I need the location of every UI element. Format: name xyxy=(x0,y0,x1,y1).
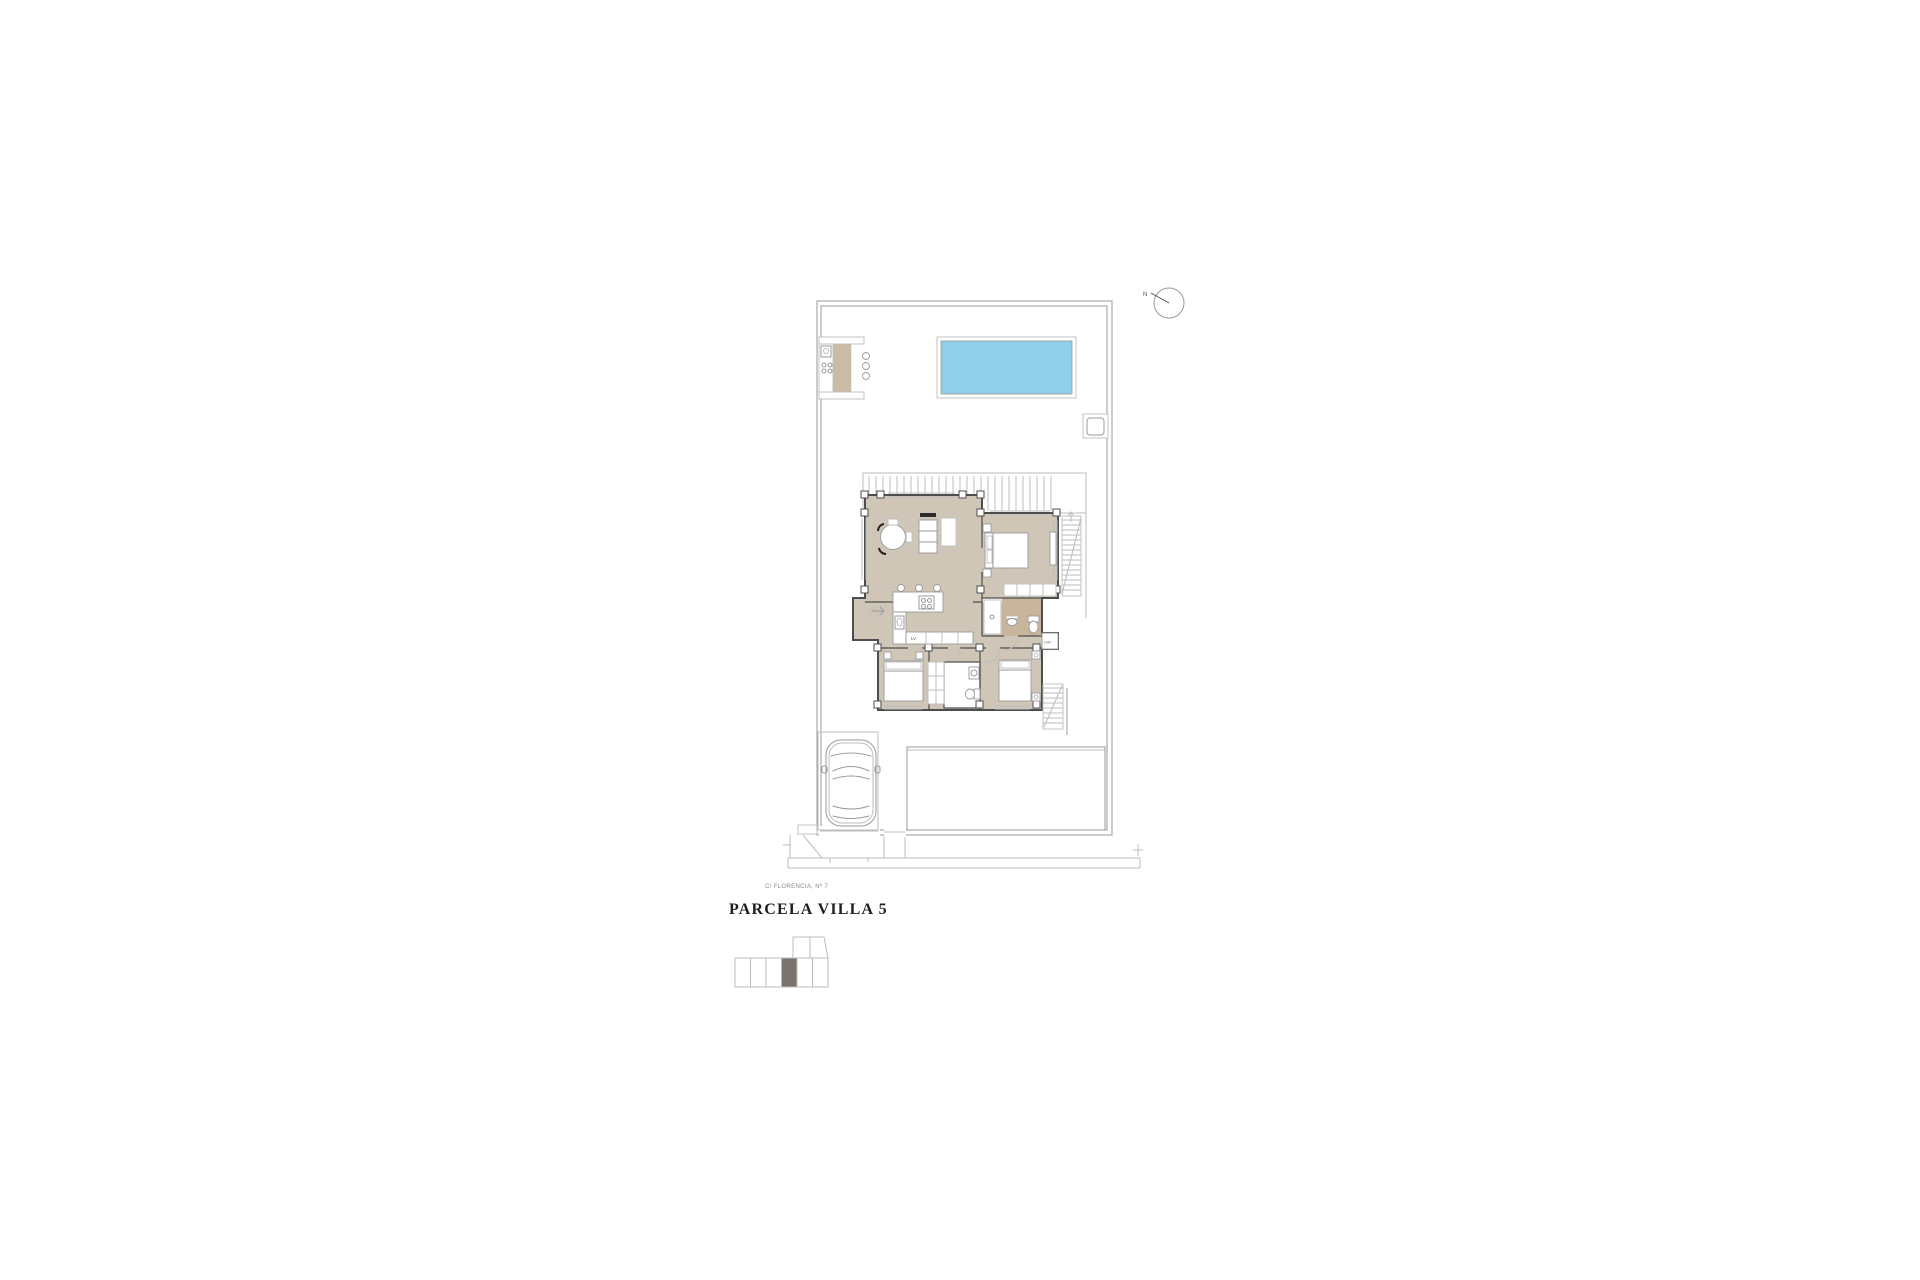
entry-porch-floor xyxy=(853,598,881,640)
house-floor-plan: LV xyxy=(853,491,1081,735)
outdoor-kitchen xyxy=(819,337,870,399)
key-plan-unit xyxy=(797,958,813,987)
bar-stools xyxy=(863,353,870,380)
outdoor-kitchen-wood-bar xyxy=(833,340,851,398)
sidewalk-lines xyxy=(788,858,1140,868)
pillar xyxy=(977,491,984,498)
key-plan-bottom-row xyxy=(735,958,828,987)
dining-table xyxy=(881,525,906,550)
tv-sideboard xyxy=(920,513,936,517)
pillow xyxy=(987,536,992,549)
drawing-sheet: LV xyxy=(0,0,1920,1280)
outdoor-kitchen-bottom-wall xyxy=(819,392,864,399)
exterior-stairs-upper xyxy=(1062,512,1081,596)
pillow xyxy=(987,550,992,563)
car-windows xyxy=(831,753,871,819)
pillar xyxy=(977,509,984,516)
key-plan-unit xyxy=(766,958,782,987)
dresser xyxy=(1050,532,1056,565)
nightstand xyxy=(884,652,891,659)
pool-water xyxy=(941,341,1072,394)
pillar xyxy=(874,701,881,708)
sofa xyxy=(919,520,937,553)
corner-gate-post xyxy=(798,825,817,834)
sidewalk-ticks xyxy=(783,844,1143,863)
nightstand xyxy=(1032,651,1040,659)
nightstand xyxy=(983,569,991,577)
terrace-outline xyxy=(907,747,1105,830)
toilet-1 xyxy=(1029,621,1038,633)
pillar xyxy=(976,701,983,708)
terrace xyxy=(907,747,1105,830)
dishwasher-label: LV xyxy=(911,636,916,641)
toilet-2 xyxy=(966,689,975,699)
nightstand xyxy=(983,524,991,532)
pillar xyxy=(959,491,966,498)
key-plan-unit-highlighted xyxy=(782,958,798,987)
pillar xyxy=(861,491,868,498)
key-plan-unit xyxy=(751,958,767,987)
key-plan-unit xyxy=(735,958,751,987)
entrance-path-lines xyxy=(884,835,905,858)
page-title: PARCELA VILLA 5 xyxy=(729,901,888,919)
site-plan-drawing: LV xyxy=(0,0,1920,1280)
driveway-ramp xyxy=(790,835,822,858)
pillar xyxy=(976,644,983,651)
nightstand xyxy=(1032,693,1040,701)
bed-3-pillows xyxy=(886,662,921,669)
parking-space xyxy=(818,732,880,830)
coffee-table xyxy=(941,518,956,546)
key-plan xyxy=(735,937,828,987)
street-address: C/ FLORENCIA, Nº 7 xyxy=(765,884,828,890)
north-arrow: N xyxy=(1143,288,1184,318)
pillar xyxy=(977,586,984,593)
pillar xyxy=(925,644,932,651)
swimming-pool xyxy=(937,337,1076,398)
island-stools xyxy=(898,585,941,592)
shower-1 xyxy=(984,600,1001,634)
key-plan-unit xyxy=(813,958,829,987)
dining-chair xyxy=(906,532,912,542)
north-label: N xyxy=(1143,292,1147,298)
car xyxy=(822,740,880,826)
outdoor-shower xyxy=(1083,414,1108,438)
pillar xyxy=(861,509,868,516)
kitchen-island xyxy=(893,592,943,612)
washbasin-1 xyxy=(1007,619,1017,626)
sidewalk xyxy=(783,835,1143,868)
nightstand xyxy=(916,652,923,659)
pillar xyxy=(874,644,881,651)
pillar xyxy=(1033,701,1040,708)
pillar xyxy=(877,491,884,498)
dining-chair xyxy=(888,519,898,525)
pillar xyxy=(861,586,868,593)
outdoor-kitchen-top-wall xyxy=(819,337,864,344)
laundry-closet: LVD xyxy=(1042,633,1058,649)
pillar xyxy=(1053,509,1060,516)
laundry-label: LVD xyxy=(1044,641,1051,645)
exterior-stairs-lower xyxy=(1043,684,1067,735)
pillar xyxy=(1033,644,1040,651)
bed-2-pillows xyxy=(1001,661,1029,668)
